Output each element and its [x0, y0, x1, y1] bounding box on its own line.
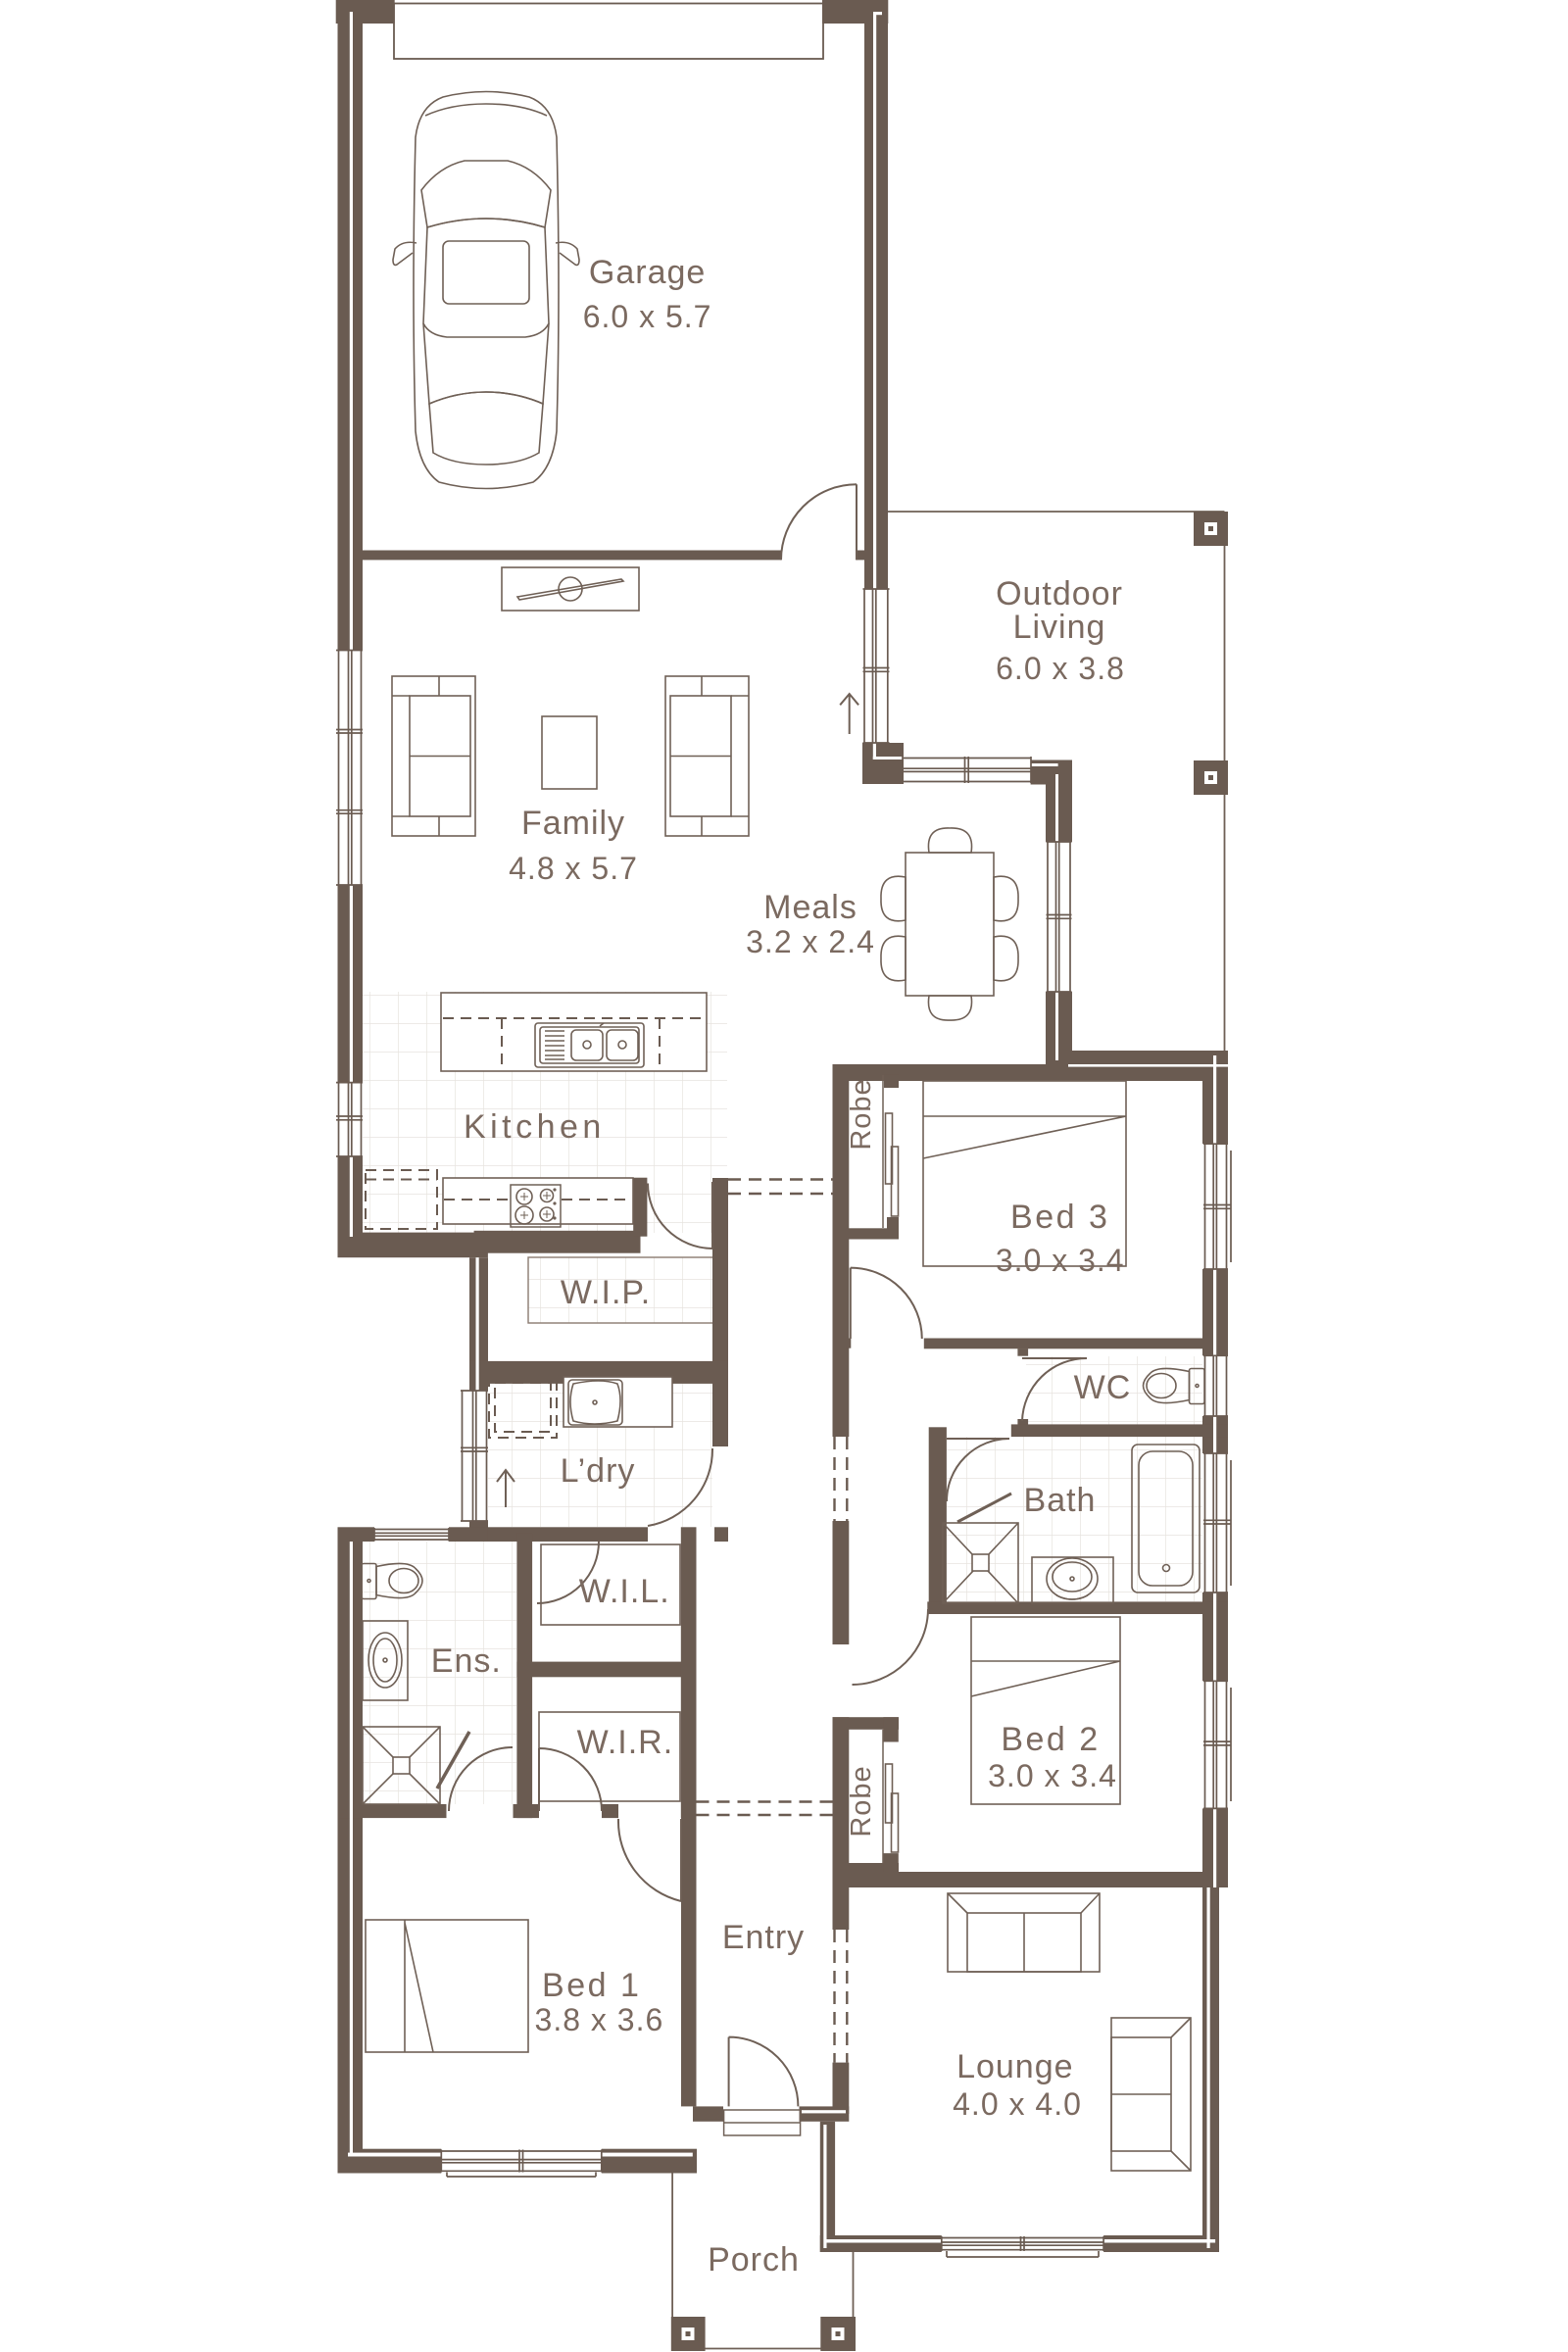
svg-text:4.0 x 4.0: 4.0 x 4.0	[953, 2086, 1082, 2122]
svg-text:3.2 x 2.4: 3.2 x 2.4	[746, 924, 875, 959]
svg-text:Garage: Garage	[589, 254, 706, 291]
svg-text:Meals: Meals	[763, 889, 857, 926]
svg-text:6.0 x 3.8: 6.0 x 3.8	[996, 651, 1125, 686]
svg-text:6.0 x 5.7: 6.0 x 5.7	[583, 299, 712, 334]
svg-text:3.0 x 3.4: 3.0 x 3.4	[988, 1758, 1117, 1793]
svg-text:Bed 3: Bed 3	[1010, 1199, 1109, 1236]
svg-text:4.8 x 5.7: 4.8 x 5.7	[509, 851, 638, 886]
svg-text:L’dry: L’dry	[561, 1452, 636, 1490]
svg-text:3.0 x 3.4: 3.0 x 3.4	[996, 1243, 1125, 1278]
svg-text:3.8 x 3.6: 3.8 x 3.6	[535, 2002, 664, 2037]
svg-text:Robe: Robe	[846, 1078, 877, 1150]
svg-text:Lounge: Lounge	[956, 2048, 1073, 2085]
svg-text:Family: Family	[521, 805, 625, 842]
svg-text:Bath: Bath	[1024, 1482, 1097, 1519]
svg-text:Outdoor: Outdoor	[996, 575, 1123, 612]
svg-text:Porch: Porch	[708, 2241, 800, 2278]
svg-text:Entry: Entry	[722, 1919, 805, 1956]
svg-text:Kitchen: Kitchen	[464, 1108, 606, 1146]
svg-text:W.I.P.: W.I.P.	[561, 1274, 651, 1311]
svg-text:Living: Living	[1013, 609, 1106, 646]
svg-text:W.I.L.: W.I.L.	[579, 1573, 670, 1610]
svg-text:WC: WC	[1074, 1369, 1132, 1406]
svg-text:Ens.: Ens.	[431, 1642, 502, 1680]
svg-text:Bed 1: Bed 1	[542, 1967, 641, 2004]
svg-text:Robe: Robe	[846, 1765, 877, 1837]
svg-text:W.I.R.: W.I.R.	[577, 1724, 674, 1761]
svg-text:Bed 2: Bed 2	[1001, 1721, 1100, 1758]
